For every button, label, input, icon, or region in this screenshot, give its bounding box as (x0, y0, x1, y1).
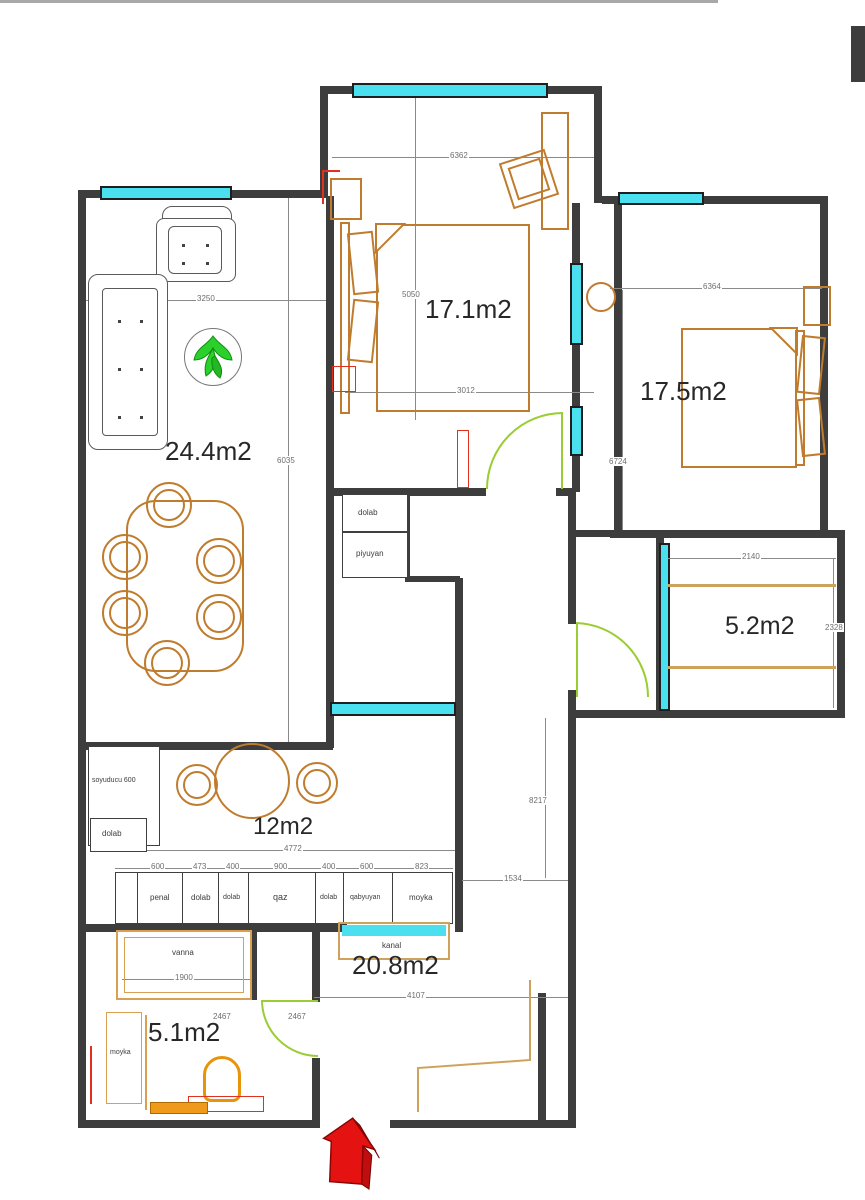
dining-chair (196, 594, 242, 640)
balcony-shelf (668, 584, 836, 587)
fridge-label: soyuducu 600 (92, 776, 136, 786)
dimension-label: 3250 (196, 294, 216, 303)
threshold-mat (150, 1102, 208, 1114)
kitchen-chair-inner (183, 771, 211, 799)
upholstery-dot (118, 320, 121, 323)
cabinet-label: moyka (409, 893, 433, 903)
dimension-label: 600 (359, 862, 374, 871)
dining-chair-inner (151, 647, 183, 679)
entrance-arrow-icon (314, 1112, 384, 1192)
dimension-line (288, 198, 289, 742)
closet-label: dolab (358, 508, 378, 518)
adjacent-drawing-fragment (851, 26, 865, 82)
dining-chair-inner (109, 541, 141, 573)
dining-chair (196, 538, 242, 584)
cabinet-label: dolab (320, 893, 337, 903)
wall (568, 488, 576, 624)
dining-chair (146, 482, 192, 528)
sofa-cushion (102, 288, 158, 436)
wall (326, 196, 334, 748)
dining-chair (144, 640, 190, 686)
bathtub-inner (124, 937, 244, 993)
armchair-cushion (168, 226, 222, 274)
dining-chair-inner (203, 601, 235, 633)
bathroom-sink (106, 1012, 142, 1104)
upholstery-dot (206, 262, 209, 265)
bathtub-label: vanna (172, 948, 194, 958)
dimension-label: 2467 (287, 1012, 307, 1021)
pillow (347, 299, 379, 363)
dining-chair-inner (109, 597, 141, 629)
dimension-label: 473 (192, 862, 207, 871)
wall (614, 203, 622, 537)
dimension-label: 4772 (283, 844, 303, 853)
ceiling-lamp (586, 282, 616, 312)
floor-plan: 6362 5050 3012 6364 6724 3250 6035 2140 … (0, 0, 865, 1200)
kitchen-closet-label: dolab (102, 829, 122, 839)
dimension-label: 600 (150, 862, 165, 871)
wall (594, 86, 602, 203)
dimension-line (622, 290, 623, 530)
upholstery-dot (118, 416, 121, 419)
upholstery-dot (182, 244, 185, 247)
door-arc (262, 1000, 318, 1056)
radiator (457, 430, 469, 488)
kitchen-chair (176, 764, 218, 806)
room-label-bedroom-right: 17.5m2 (640, 377, 727, 405)
red-accent-line (322, 170, 324, 204)
dimension-label: 1534 (503, 874, 523, 883)
kitchen-table (214, 743, 290, 819)
wall (568, 710, 576, 1128)
wall (610, 530, 845, 538)
door-arc (487, 413, 563, 489)
pouf-inner (508, 158, 551, 201)
dimension-label: 6364 (702, 282, 722, 291)
dining-chair-inner (203, 545, 235, 577)
wall (538, 993, 546, 1128)
room-label-hallway: 20.8m2 (352, 951, 439, 979)
bed-fold-corner (376, 224, 404, 252)
upholstery-dot (140, 320, 143, 323)
wall (572, 456, 580, 492)
pillow (347, 231, 379, 295)
dimension-label: 8217 (528, 796, 548, 805)
wall (572, 203, 580, 263)
door-arc (576, 623, 648, 697)
upholstery-dot (140, 368, 143, 371)
cabinet-cell (115, 872, 139, 924)
bed-fold-corner (771, 328, 797, 354)
dimension-label: 823 (414, 862, 429, 871)
wall (312, 932, 320, 1002)
dining-table (126, 500, 244, 672)
dimension-label: 400 (321, 862, 336, 871)
dining-chair (102, 590, 148, 636)
room-label-kitchen: 12m2 (253, 813, 313, 841)
washstand-label: piyuyan (356, 549, 384, 559)
kitchen-chair-inner (303, 769, 331, 797)
room-label-bedroom-top: 17.1m2 (425, 295, 512, 323)
wall (390, 1120, 576, 1128)
window (100, 186, 232, 200)
wall (568, 530, 618, 537)
window (570, 406, 583, 456)
upholstery-dot (140, 416, 143, 419)
dimension-label: 2140 (741, 552, 761, 561)
wall (405, 576, 460, 582)
window (330, 702, 456, 716)
wall (568, 690, 576, 718)
wall (455, 578, 463, 932)
red-accent-line (322, 170, 340, 172)
kitchen-chair (296, 762, 338, 804)
window (570, 263, 583, 345)
dimension-label: 6035 (276, 456, 296, 465)
cabinet-label: dolab (191, 893, 211, 903)
partition-line (145, 1015, 147, 1110)
wall (78, 190, 86, 1128)
upholstery-dot (118, 368, 121, 371)
window (618, 192, 704, 205)
dimension-label: 400 (225, 862, 240, 871)
nightstand (803, 286, 831, 326)
wall (78, 1120, 318, 1128)
dimension-label: 6362 (449, 151, 469, 160)
page-border-line (0, 0, 718, 3)
upholstery-dot (206, 244, 209, 247)
upholstery-dot (182, 262, 185, 265)
dimension-label: 2328 (824, 623, 844, 632)
logo-badge (184, 328, 242, 386)
window (352, 83, 548, 98)
window (659, 543, 670, 711)
room-label-bathroom: 5.1m2 (148, 1018, 220, 1046)
room-label-balcony: 5.2m2 (725, 612, 794, 640)
balcony-shelf (668, 666, 836, 669)
bathroom-sink-label: moyka (110, 1048, 131, 1058)
cabinet-label: dolab (223, 893, 240, 903)
nightstand (330, 178, 362, 220)
logo-flower-icon (186, 330, 240, 384)
railing-line (418, 980, 538, 1112)
cabinet-label: penal (150, 893, 170, 903)
cabinet-label: qabyuyan (350, 893, 380, 903)
radiator (332, 366, 356, 392)
dimension-label: 6724 (608, 457, 628, 466)
wall (575, 710, 845, 718)
dimension-line (833, 558, 834, 708)
dining-chair (102, 534, 148, 580)
cabinet-label: qaz (273, 892, 288, 902)
dining-chair-inner (153, 489, 185, 521)
duct-vent (342, 925, 446, 936)
red-accent-line (90, 1046, 92, 1104)
dimension-label: 900 (273, 862, 288, 871)
room-label-living: 24.4m2 (165, 437, 252, 465)
wall (572, 345, 580, 406)
